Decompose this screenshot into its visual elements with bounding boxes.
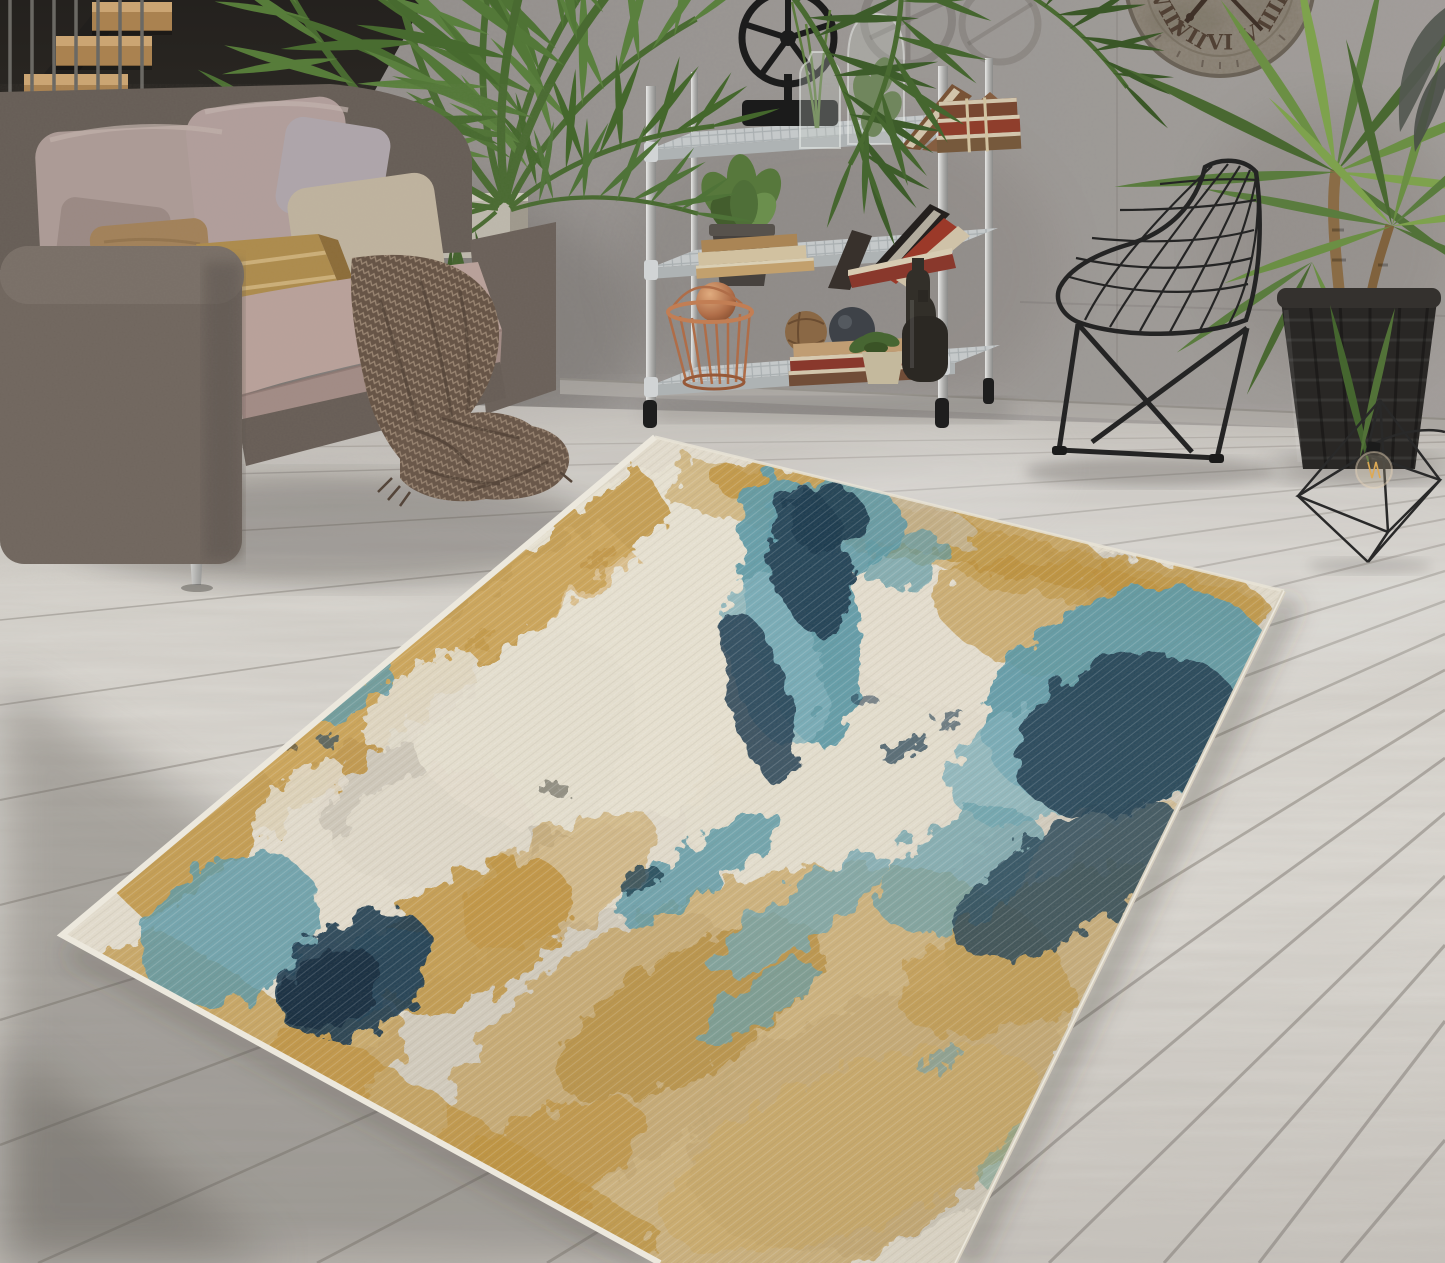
product-photo: IIII V VI VII VIII — [0, 0, 1445, 1263]
vignette — [0, 0, 1445, 1263]
